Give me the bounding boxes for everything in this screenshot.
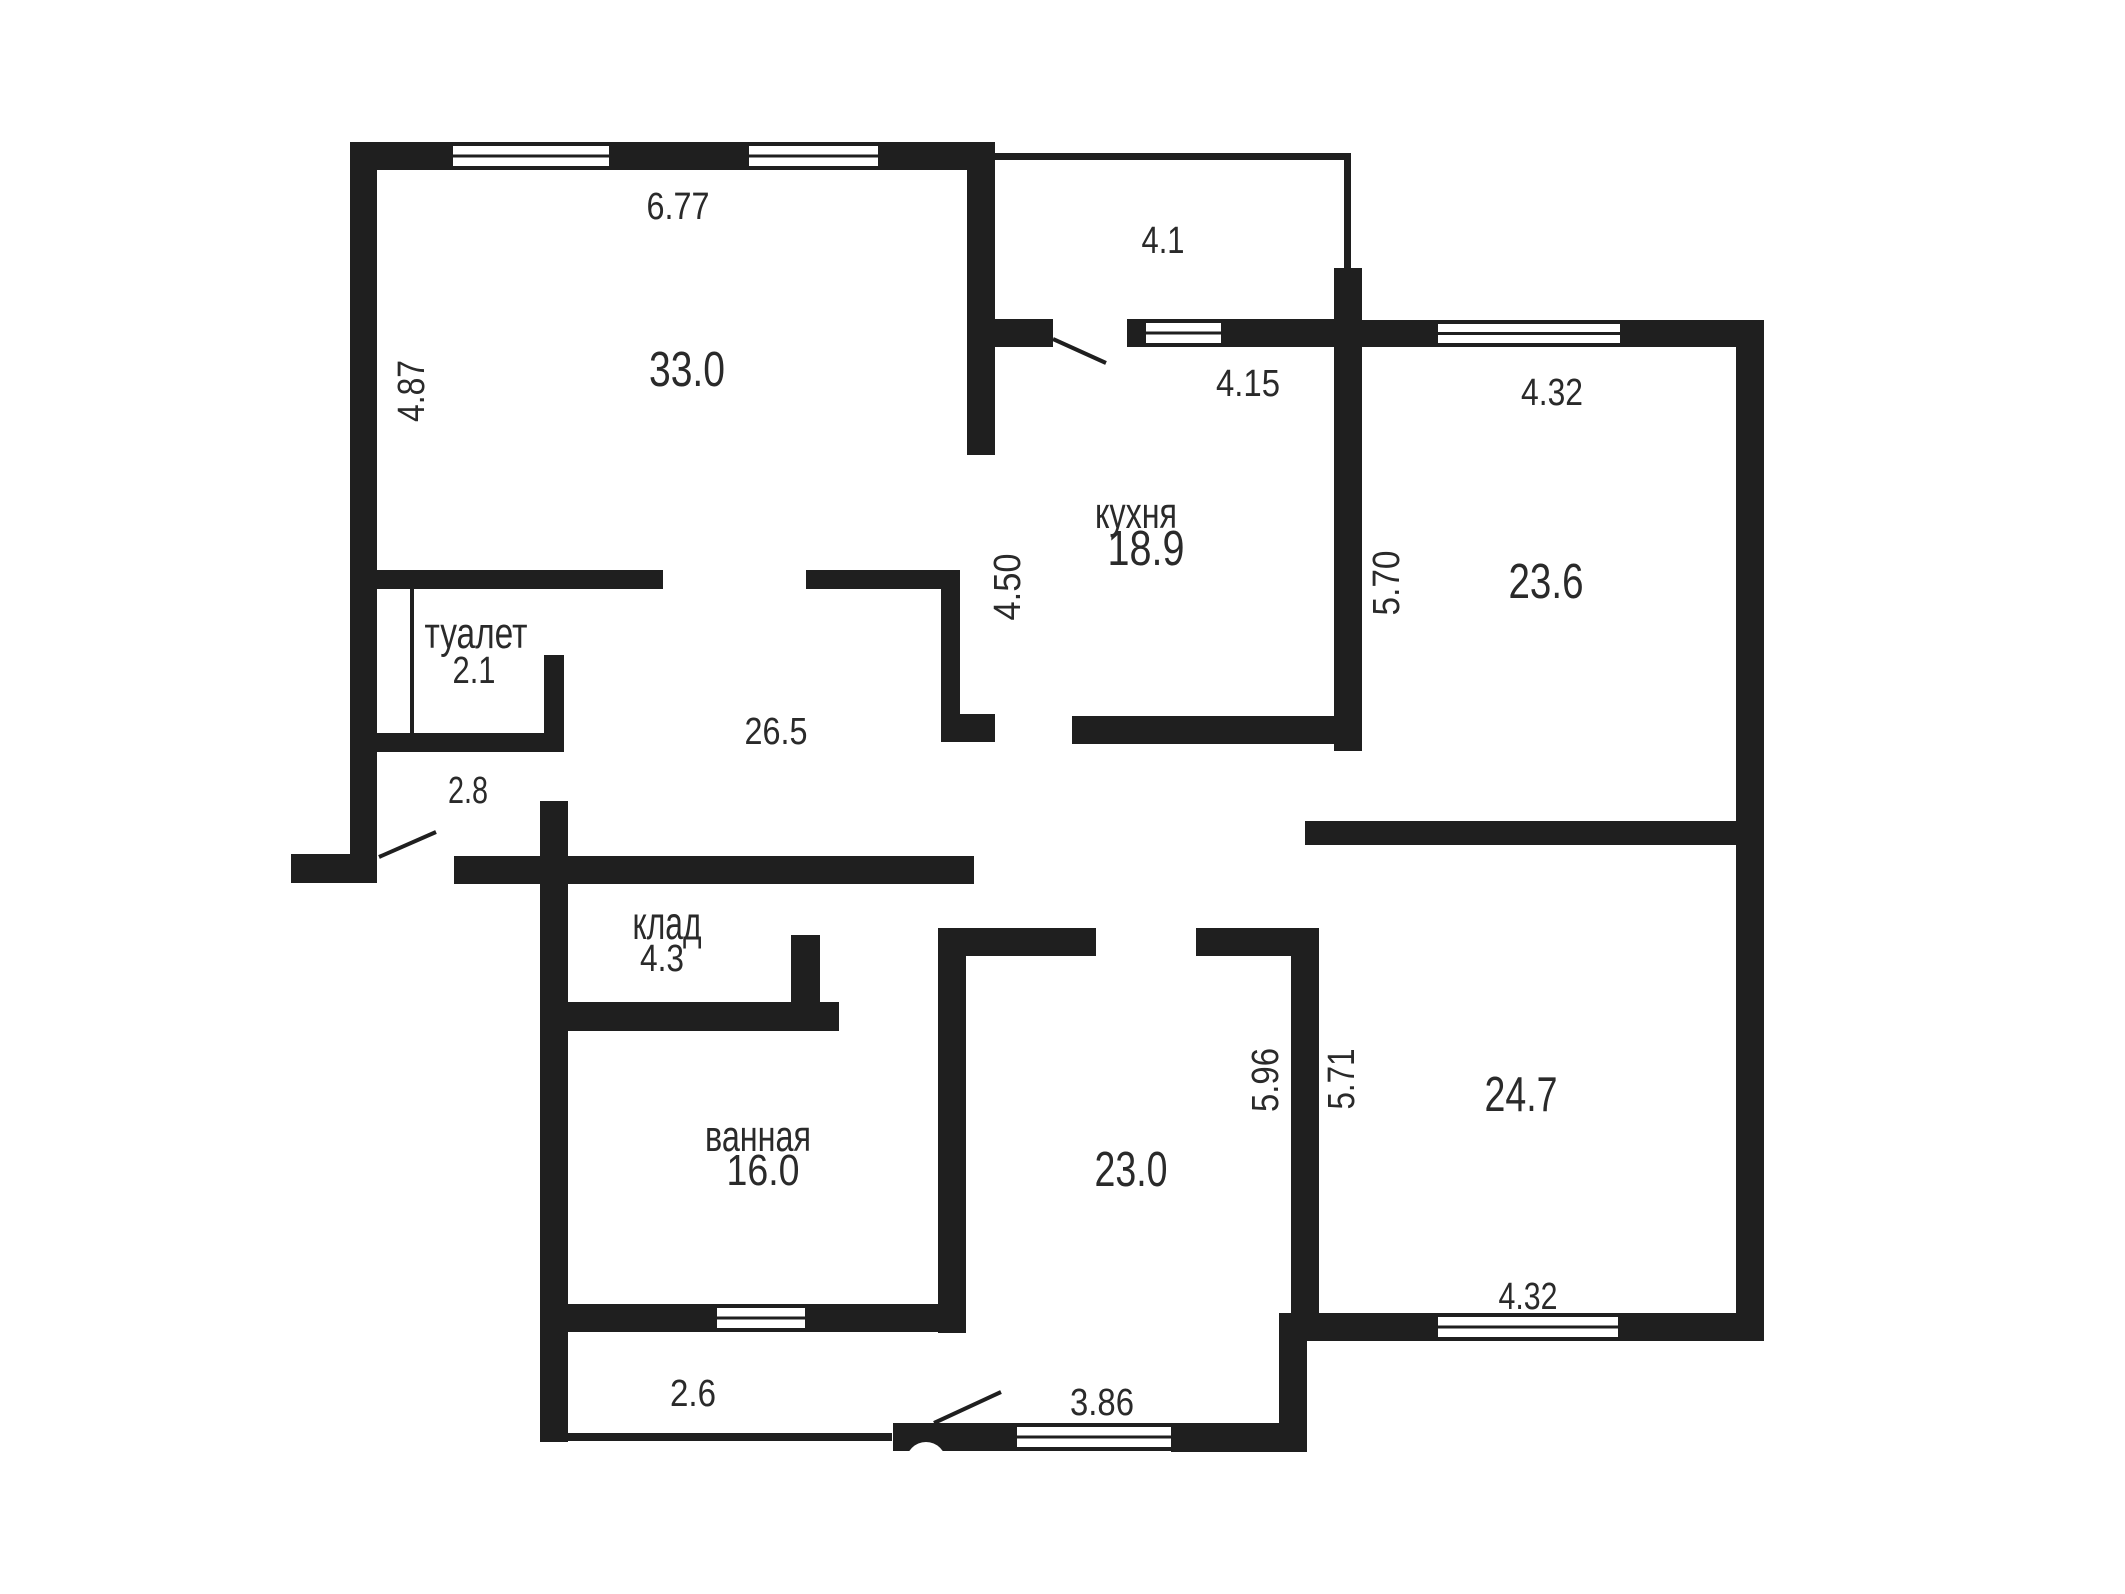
svg-text:33.0: 33.0 xyxy=(649,343,725,397)
svg-text:4.50: 4.50 xyxy=(987,554,1029,621)
svg-text:26.5: 26.5 xyxy=(745,711,808,753)
svg-text:4.15: 4.15 xyxy=(1216,363,1280,405)
svg-text:4.87: 4.87 xyxy=(391,360,433,422)
svg-text:24.7: 24.7 xyxy=(1485,1068,1558,1122)
svg-text:18.9: 18.9 xyxy=(1108,522,1185,576)
svg-text:2.6: 2.6 xyxy=(670,1373,716,1415)
svg-text:5.96: 5.96 xyxy=(1245,1048,1287,1112)
svg-text:6.77: 6.77 xyxy=(647,186,710,228)
svg-text:4.32: 4.32 xyxy=(1521,372,1583,414)
svg-text:2.8: 2.8 xyxy=(448,770,488,812)
svg-text:4.32: 4.32 xyxy=(1499,1276,1558,1318)
svg-text:4.1: 4.1 xyxy=(1142,220,1185,262)
svg-text:2.1: 2.1 xyxy=(453,650,496,692)
svg-text:16.0: 16.0 xyxy=(727,1146,800,1195)
svg-text:3.86: 3.86 xyxy=(1070,1382,1134,1424)
svg-text:23.6: 23.6 xyxy=(1509,555,1584,609)
svg-text:23.0: 23.0 xyxy=(1095,1143,1168,1197)
svg-text:5.70: 5.70 xyxy=(1366,551,1408,616)
svg-text:5.71: 5.71 xyxy=(1321,1049,1363,1110)
svg-text:4.3: 4.3 xyxy=(640,938,684,980)
